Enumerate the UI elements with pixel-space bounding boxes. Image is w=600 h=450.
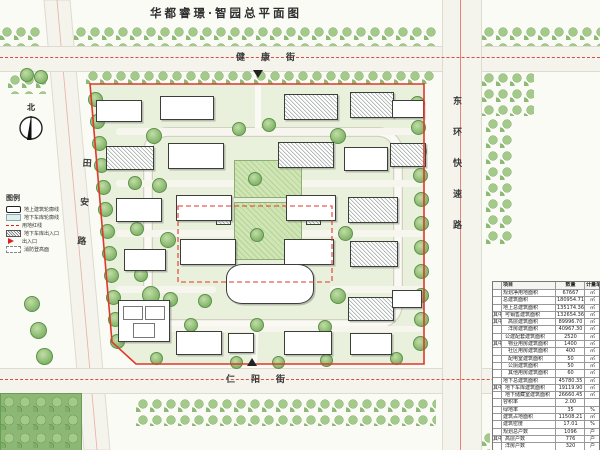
legend-item: 地下车库轮廓线 xyxy=(6,213,76,221)
building xyxy=(392,100,424,118)
tree-icon xyxy=(248,172,262,186)
economic-indicators-table: 项目 数量 计量单位 规划净用地面积 67667 ㎡ 总建筑面积 180954.… xyxy=(492,281,600,450)
table-row: 公建配套建筑面积 2520 ㎡ xyxy=(493,333,599,340)
table-cell-group xyxy=(493,399,501,405)
legend-item: 用地红线 xyxy=(6,221,76,229)
table-cell-group xyxy=(493,392,501,398)
table-row: 地下总建筑面积 45780.35 ㎡ xyxy=(493,377,599,384)
table-cell-quantity: 50 xyxy=(555,356,584,362)
table-cell-unit: ㎡ xyxy=(584,297,599,303)
table-cell-group xyxy=(493,378,501,384)
table-cell-unit: ㎡ xyxy=(584,414,599,420)
building xyxy=(350,333,392,355)
table-row: 其中 可销售建筑面积 132654.36 ㎡ xyxy=(493,311,599,318)
table-cell-group: 其中 xyxy=(493,436,501,442)
table-header-unit: 计量单位 xyxy=(584,282,599,289)
table-cell-item: 绿地率 xyxy=(501,407,555,413)
building xyxy=(348,297,394,321)
table-cell-item: 可销售建筑面积 xyxy=(501,312,555,318)
table-cell-quantity: 135174.36 xyxy=(555,305,584,311)
hedge-band xyxy=(486,116,512,246)
table-row: 社区用房建筑面积 400 ㎡ xyxy=(493,347,599,354)
table-cell-quantity: 60 xyxy=(555,370,584,376)
table-row: 其他用房建筑面积 60 ㎡ xyxy=(493,369,599,376)
sheet-title: 华都睿璟·智园总平面图 xyxy=(150,5,302,21)
table-cell-group xyxy=(493,370,501,376)
table-cell-unit: 户 xyxy=(584,429,599,435)
table-cell-unit: ㎡ xyxy=(584,356,599,362)
tree-icon xyxy=(272,356,285,369)
tree-icon xyxy=(102,246,117,261)
hedge-band xyxy=(74,24,438,46)
table-row: 其中 高层户数 776 户 xyxy=(493,435,599,442)
table-row: 地上总建筑面积 135174.36 ㎡ xyxy=(493,304,599,311)
table-row: 其中 地下车库建筑面积 19119.90 ㎡ xyxy=(493,384,599,391)
table-cell-quantity: 132654.36 xyxy=(555,312,584,318)
table-cell-group xyxy=(493,305,501,311)
table-cell-unit: ㎡ xyxy=(584,378,599,384)
table-cell-item: 社区用房建筑面积 xyxy=(501,348,555,354)
building xyxy=(176,195,232,221)
legend-item-label: 用地红线 xyxy=(22,222,42,229)
tree-icon xyxy=(230,356,243,369)
tree-icon xyxy=(100,224,115,239)
table-cell-item: 建筑密度 xyxy=(501,421,555,427)
table-cell-group xyxy=(493,297,501,303)
tree-icon xyxy=(30,322,47,339)
tree-icon xyxy=(146,128,162,144)
tree-icon xyxy=(130,222,144,236)
hedge-mass xyxy=(0,393,82,450)
table-cell-unit: ㎡ xyxy=(584,363,599,369)
table-cell-unit: ㎡ xyxy=(584,319,599,325)
table-cell-item: 其他用房建筑面积 xyxy=(501,370,555,376)
service-building xyxy=(118,300,170,342)
table-cell-unit xyxy=(584,399,599,405)
table-cell-unit: ㎡ xyxy=(584,341,599,347)
tree-icon xyxy=(320,354,333,367)
tree-icon xyxy=(414,216,429,231)
table-header-group xyxy=(493,282,501,289)
table-cell-group: 其中 xyxy=(493,385,501,391)
table-cell-item: 地上总建筑面积 xyxy=(501,305,555,311)
tree-icon xyxy=(250,318,264,332)
table-cell-group: 其中 xyxy=(493,319,501,325)
hedge-band xyxy=(0,24,40,46)
service-room xyxy=(145,306,165,320)
legend-item-label: 出入口 xyxy=(22,238,37,245)
fire-access-icon xyxy=(6,246,21,253)
building xyxy=(278,142,334,168)
tree-icon xyxy=(330,288,346,304)
tree-icon xyxy=(36,348,53,365)
tree-icon xyxy=(152,178,167,193)
table-cell-unit: 户 xyxy=(584,436,599,442)
tree-icon xyxy=(150,352,163,365)
table-cell-quantity: 180954.71 xyxy=(555,297,584,303)
building xyxy=(286,195,336,221)
table-cell-unit: ㎡ xyxy=(584,385,599,391)
building xyxy=(390,143,426,167)
table-cell-quantity: 40967.30 xyxy=(555,326,584,332)
compass-icon xyxy=(16,113,46,143)
building xyxy=(168,143,224,169)
garage-outline-icon xyxy=(6,214,21,221)
tree-icon xyxy=(232,122,246,136)
table-cell-item: 地下储藏室建筑面积 xyxy=(501,392,555,398)
building xyxy=(350,92,394,118)
street-label-north: 健康街 xyxy=(236,50,311,63)
tree-icon xyxy=(413,336,428,351)
building xyxy=(180,239,236,265)
table-row: 容积率 2.00 xyxy=(493,398,599,405)
table-row: 规划净用地面积 67667 ㎡ xyxy=(493,289,599,296)
north-label: 北 xyxy=(14,102,48,113)
table-cell-unit: 户 xyxy=(584,443,599,449)
table-row: 其中 高层建筑面积 89996.70 ㎡ xyxy=(493,318,599,325)
table-row: 洋房户数 320 户 xyxy=(493,442,599,449)
table-cell-quantity: 1400 xyxy=(555,341,584,347)
hedge-band xyxy=(482,430,490,450)
table-row: 建筑占地面积 11508.21 ㎡ xyxy=(493,413,599,420)
service-room xyxy=(133,323,155,338)
tree-icon xyxy=(411,120,426,135)
table-cell-group xyxy=(493,363,501,369)
legend-item-label: 地下车库轮廓线 xyxy=(24,214,59,221)
table-cell-quantity: 776 xyxy=(555,436,584,442)
table-cell-quantity: 2.00 xyxy=(555,399,584,405)
table-cell-item: 洋房户数 xyxy=(501,443,555,449)
table-cell-quantity: 400 xyxy=(555,348,584,354)
building xyxy=(284,239,334,265)
building xyxy=(160,96,214,120)
legend-item: 消防登高面 xyxy=(6,245,76,253)
hedge-band xyxy=(482,70,534,116)
street-label-south: 仁阳街 xyxy=(226,372,301,385)
table-cell-item: 规划总户数 xyxy=(501,429,555,435)
building xyxy=(348,197,398,223)
table-cell-item: 洋房建筑面积 xyxy=(501,326,555,332)
table-cell-group xyxy=(493,326,501,332)
table-cell-unit: ㎡ xyxy=(584,290,599,296)
table-cell-item: 公建配套建筑面积 xyxy=(501,334,555,340)
table-cell-quantity: 45780.35 xyxy=(555,378,584,384)
table-cell-quantity: 17.01 xyxy=(555,421,584,427)
site-plan-sheet: 华都睿璟·智园总平面图 健康街 仁阳街 东环快速路 田安路 北 图例 地上建筑轮… xyxy=(0,0,600,450)
table-cell-item: 高层建筑面积 xyxy=(501,319,555,325)
north-entrance-arrow-icon xyxy=(253,70,263,78)
tree-icon xyxy=(414,312,429,327)
table-cell-unit: % xyxy=(584,407,599,413)
entrance-arrow-icon xyxy=(6,239,19,244)
table-cell-group: 其中 xyxy=(493,312,501,318)
tree-icon xyxy=(250,228,264,242)
legend-item: 地上建筑轮廓线 xyxy=(6,205,76,213)
table-cell-group xyxy=(493,290,501,296)
building xyxy=(284,94,338,120)
tree-icon xyxy=(338,226,353,241)
tree-icon xyxy=(104,268,119,283)
table-header-item: 项目 xyxy=(501,282,555,289)
table-cell-item: 物业用房建筑面积 xyxy=(501,341,555,347)
tree-icon xyxy=(34,70,48,84)
legend-item: 出入口 xyxy=(6,237,76,245)
tree-icon xyxy=(414,264,429,279)
table-row: 地下储藏室建筑面积 26660.45 ㎡ xyxy=(493,391,599,398)
table-cell-unit: ㎡ xyxy=(584,305,599,311)
legend-item: 地下车库出入口 xyxy=(6,229,76,237)
tree-icon xyxy=(414,192,429,207)
table-row: 规划总户数 1096 户 xyxy=(493,428,599,435)
tree-icon xyxy=(98,202,113,217)
table-cell-unit: ㎡ xyxy=(584,392,599,398)
table-cell-group xyxy=(493,421,501,427)
table-cell-group xyxy=(493,356,501,362)
table-row: 总建筑面积 180954.71 ㎡ xyxy=(493,296,599,303)
building xyxy=(116,198,162,222)
tree-icon xyxy=(160,232,176,248)
tree-icon xyxy=(20,68,34,82)
legend-title: 图例 xyxy=(6,193,76,203)
tree-icon xyxy=(128,176,142,190)
building xyxy=(96,100,142,122)
table-row: 配电室建筑面积 50 ㎡ xyxy=(493,355,599,362)
building xyxy=(344,147,388,171)
tree-icon xyxy=(184,318,198,332)
table-cell-unit: ㎡ xyxy=(584,312,599,318)
table-row: 建筑密度 17.01 % xyxy=(493,420,599,427)
table-cell-item: 规划净用地面积 xyxy=(501,290,555,296)
table-cell-item: 高层户数 xyxy=(501,436,555,442)
tree-icon xyxy=(24,296,40,312)
table-cell-item: 地下车库建筑面积 xyxy=(501,385,555,391)
table-cell-quantity: 89996.70 xyxy=(555,319,584,325)
table-cell-unit: ㎡ xyxy=(584,370,599,376)
table-header-row: 项目 数量 计量单位 xyxy=(493,282,599,289)
building xyxy=(176,331,222,355)
building xyxy=(228,333,254,353)
red-boundary-icon xyxy=(6,225,19,226)
table-cell-group xyxy=(493,414,501,420)
tree-icon xyxy=(262,118,276,132)
building-outline-icon xyxy=(6,206,21,213)
table-cell-quantity: 320 xyxy=(555,443,584,449)
table-cell-group xyxy=(493,334,501,340)
tree-icon xyxy=(198,294,212,308)
building xyxy=(350,241,398,267)
south-entrance-arrow-icon xyxy=(247,358,257,366)
table-cell-group xyxy=(493,429,501,435)
table-cell-group xyxy=(493,407,501,413)
hedge-band xyxy=(136,396,436,426)
service-room xyxy=(123,306,143,320)
table-cell-item: 总建筑面积 xyxy=(501,297,555,303)
table-cell-quantity: 50 xyxy=(555,363,584,369)
table-cell-quantity: 11508.21 xyxy=(555,414,584,420)
table-header-quantity: 数量 xyxy=(555,282,584,289)
table-row: 绿地率 35 % xyxy=(493,406,599,413)
table-cell-quantity: 26660.45 xyxy=(555,392,584,398)
table-cell-item: 建筑占地面积 xyxy=(501,414,555,420)
table-cell-item: 容积率 xyxy=(501,399,555,405)
tree-icon xyxy=(414,240,429,255)
table-cell-quantity: 19119.90 xyxy=(555,385,584,391)
table-cell-item: 地下总建筑面积 xyxy=(501,378,555,384)
legend-item-label: 消防登高面 xyxy=(24,246,49,253)
street-label-east: 东环快速路 xyxy=(450,96,463,251)
table-cell-quantity: 35 xyxy=(555,407,584,413)
table-cell-item: 配电室建筑面积 xyxy=(501,356,555,362)
table-row: 公厕建筑面积 50 ㎡ xyxy=(493,362,599,369)
building xyxy=(106,146,154,170)
legend-item-label: 地上建筑轮廓线 xyxy=(24,206,59,213)
building xyxy=(124,249,166,271)
table-cell-quantity: 67667 xyxy=(555,290,584,296)
table-cell-unit: % xyxy=(584,421,599,427)
north-compass: 北 xyxy=(14,102,48,147)
table-cell-group xyxy=(493,443,501,449)
central-curved-building xyxy=(226,264,314,304)
table-cell-unit: ㎡ xyxy=(584,326,599,332)
hedge-band xyxy=(482,24,600,46)
table-cell-unit: ㎡ xyxy=(584,334,599,340)
table-cell-group xyxy=(493,348,501,354)
garage-entrance-icon xyxy=(6,230,21,237)
table-row: 洋房建筑面积 40967.30 ㎡ xyxy=(493,325,599,332)
legend: 图例 地上建筑轮廓线 地下车库轮廓线 用地红线 地下车库出入口 出入口 消防登高… xyxy=(6,193,76,253)
tree-icon xyxy=(96,180,111,195)
tree-icon xyxy=(92,136,107,151)
table-cell-group: 其中 xyxy=(493,341,501,347)
legend-item-label: 地下车库出入口 xyxy=(24,230,59,237)
table-row: 其中 物业用房建筑面积 1400 ㎡ xyxy=(493,340,599,347)
building xyxy=(392,290,422,308)
table-cell-quantity: 1096 xyxy=(555,429,584,435)
building xyxy=(284,331,332,355)
tree-icon xyxy=(413,168,428,183)
table-cell-unit: ㎡ xyxy=(584,348,599,354)
table-cell-item: 公厕建筑面积 xyxy=(501,363,555,369)
table-cell-quantity: 2520 xyxy=(555,334,584,340)
